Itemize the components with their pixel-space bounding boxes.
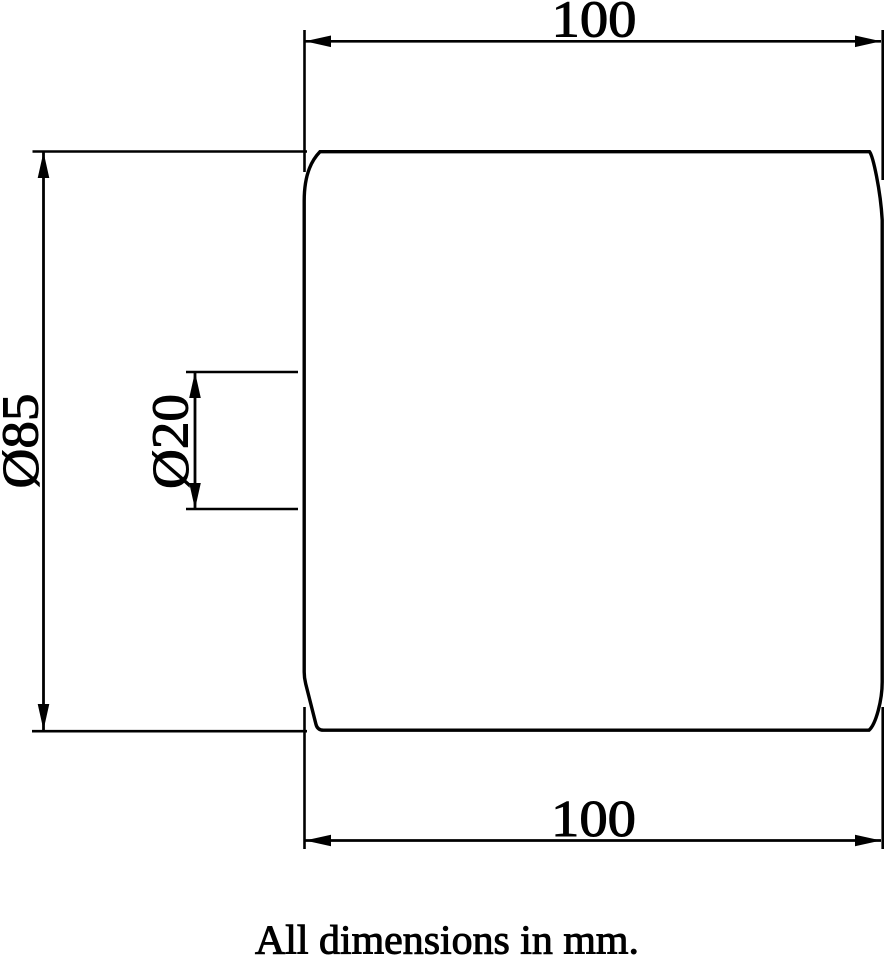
svg-text:Ø85: Ø85 — [0, 394, 50, 489]
svg-text:100: 100 — [552, 0, 637, 49]
svg-text:Ø20: Ø20 — [143, 394, 200, 489]
svg-text:100: 100 — [551, 791, 636, 848]
svg-text:All dimensions in mm.: All dimensions in mm. — [255, 917, 639, 956]
